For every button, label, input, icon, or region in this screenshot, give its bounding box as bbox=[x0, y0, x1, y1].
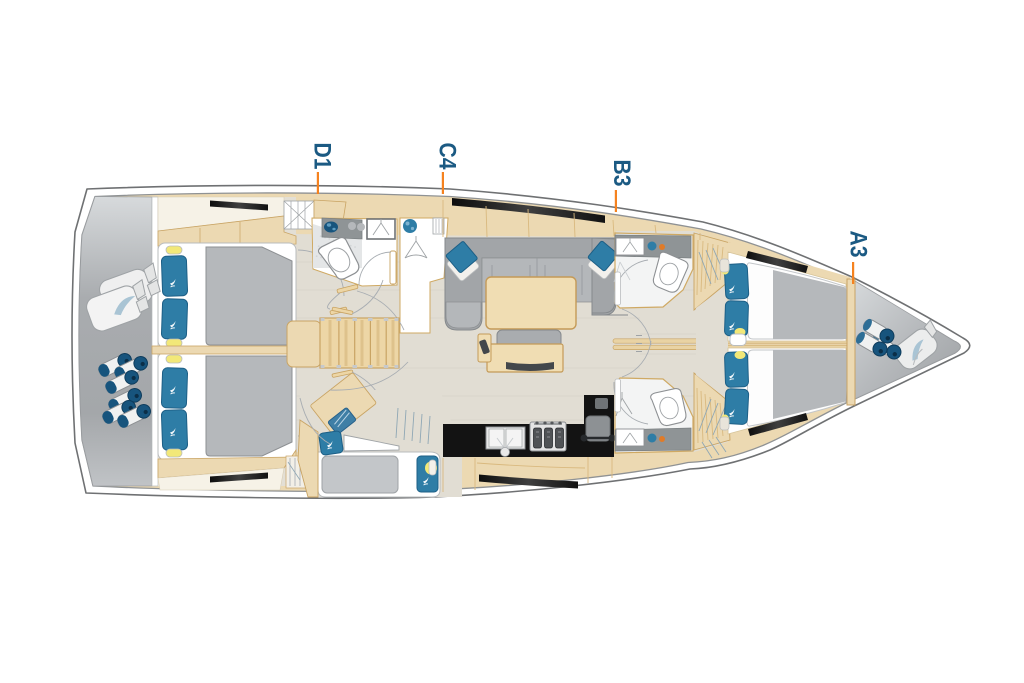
svg-text:D1: D1 bbox=[309, 143, 336, 170]
svg-text:B3: B3 bbox=[608, 160, 635, 187]
svg-text:C4: C4 bbox=[434, 143, 461, 171]
svg-text:A3: A3 bbox=[845, 231, 872, 258]
